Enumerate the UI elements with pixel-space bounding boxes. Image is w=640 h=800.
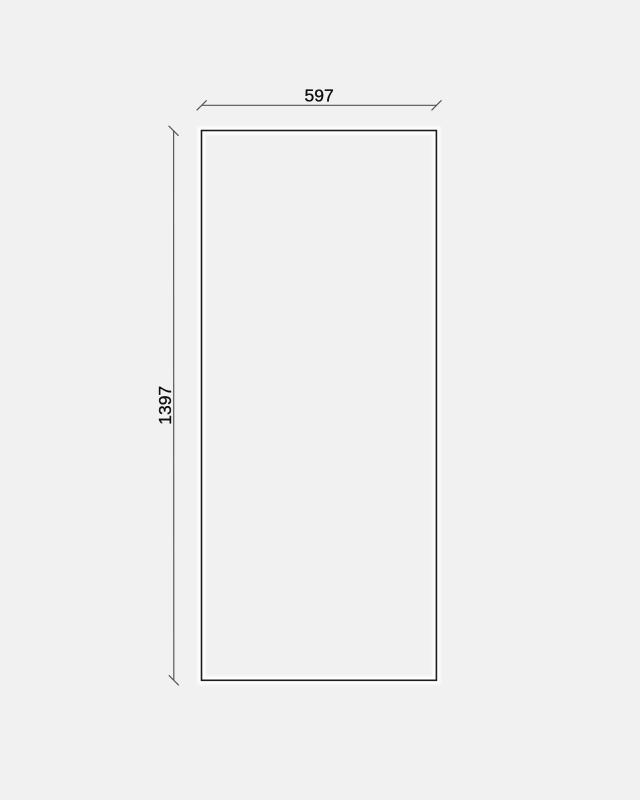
- svg-text:597: 597: [304, 86, 333, 106]
- svg-text:1397: 1397: [155, 386, 175, 425]
